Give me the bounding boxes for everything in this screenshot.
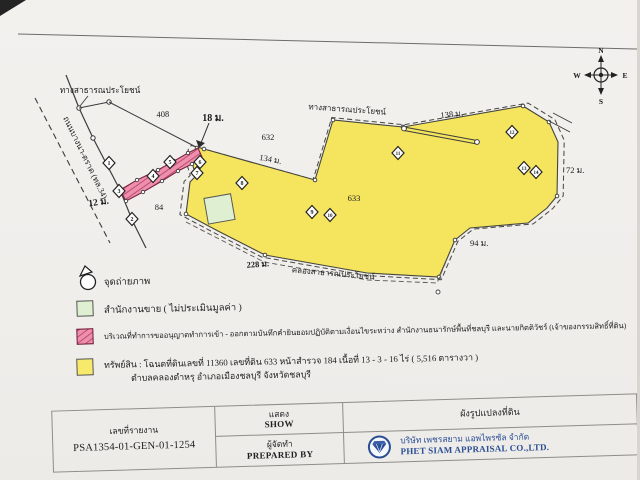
show-label-en: SHOW [264, 419, 294, 431]
svg-text:7: 7 [196, 171, 199, 177]
svg-text:4: 4 [152, 174, 155, 180]
svg-text:1: 1 [108, 161, 111, 167]
svg-text:9: 9 [311, 210, 314, 216]
sales-office-square [204, 194, 235, 224]
svg-text:14: 14 [534, 171, 540, 176]
dim-94m: 94 ม. [470, 238, 488, 248]
dim-84: 84 [155, 202, 164, 212]
corner-fold-mark [0, 0, 26, 16]
survey-marker-2: 2 [126, 213, 138, 226]
svg-text:6: 6 [199, 160, 202, 166]
compass-s-label: S [599, 97, 603, 106]
svg-text:10: 10 [328, 214, 334, 219]
prepared-label-th: ผู้จัดทำ [267, 439, 293, 450]
prepared-label-en: PREPARED BY [247, 449, 314, 462]
phet-siam-logo [366, 434, 393, 461]
dim-228m: 228 ม. [246, 258, 269, 270]
dim-72m: 72 ม. [566, 165, 584, 175]
dim-18m: 18 ม. [202, 113, 224, 124]
compass-w-label: W [573, 71, 581, 80]
dim-134m: 134 ม. [259, 152, 283, 166]
svg-text:12: 12 [510, 131, 516, 136]
report-number-value: PSA1354-01-GEN-01-1254 [73, 438, 196, 455]
show-label-th: แสดง [269, 408, 290, 419]
top-rule-line [18, 34, 637, 49]
survey-lines-408 [79, 96, 196, 147]
arrow-18m [196, 123, 209, 148]
dim-632: 632 [262, 132, 275, 142]
compass-n-label: N [598, 46, 604, 55]
legend-photo-point-label: จุดถ่ายภาพ [104, 274, 151, 290]
legend-pink-swatch [77, 329, 94, 345]
scanned-appraisal-page: 1234567891011121314 N E S W ทางสาธารณประ… [0, 0, 640, 480]
show-cell: แสดง SHOW [215, 403, 344, 437]
legend-sales-office-label: สำนักงานขาย ( ไม่ประเมินมูลค่า ) [104, 300, 242, 318]
svg-text:3: 3 [118, 189, 121, 195]
svg-text:5: 5 [169, 160, 172, 166]
svg-text:13: 13 [522, 167, 528, 172]
survey-marker-1: 1 [103, 157, 115, 170]
parcel-633-fill [186, 106, 558, 277]
legend-green-swatch [77, 301, 94, 317]
legend-yellow-swatch [77, 359, 94, 376]
svg-text:11: 11 [396, 152, 401, 157]
photo-point-symbol [80, 266, 96, 290]
dim-633: 633 [348, 193, 361, 203]
svg-text:2: 2 [131, 217, 134, 223]
dim-408: 408 [156, 109, 169, 120]
road-top-label: ทางสาธารณประโยชน์ [308, 101, 387, 116]
prepared-by-cell: ผู้จัดทำ PREPARED BY [216, 433, 345, 467]
report-number-cell: เลขที่รายงาน PSA1354-01-GEN-01-1254 [52, 407, 217, 472]
compass-e-label: E [622, 71, 627, 80]
diagram-title: ผังรูปแปลงที่ดิน [460, 407, 520, 420]
bangna-trad-road-label: ถนนบางนา-ตราด (ทล.34) [61, 115, 109, 201]
road-top-left-label: ทางสาธารณประโยชน์ [60, 85, 141, 95]
svg-text:8: 8 [241, 181, 244, 187]
parcel-633 [180, 103, 564, 280]
report-number-label: เลขที่รายงาน [109, 425, 158, 437]
dim-12m: 12 ม. [88, 197, 110, 210]
compass-rose: N E S W [573, 46, 627, 106]
lone-survey-dot [436, 290, 440, 294]
